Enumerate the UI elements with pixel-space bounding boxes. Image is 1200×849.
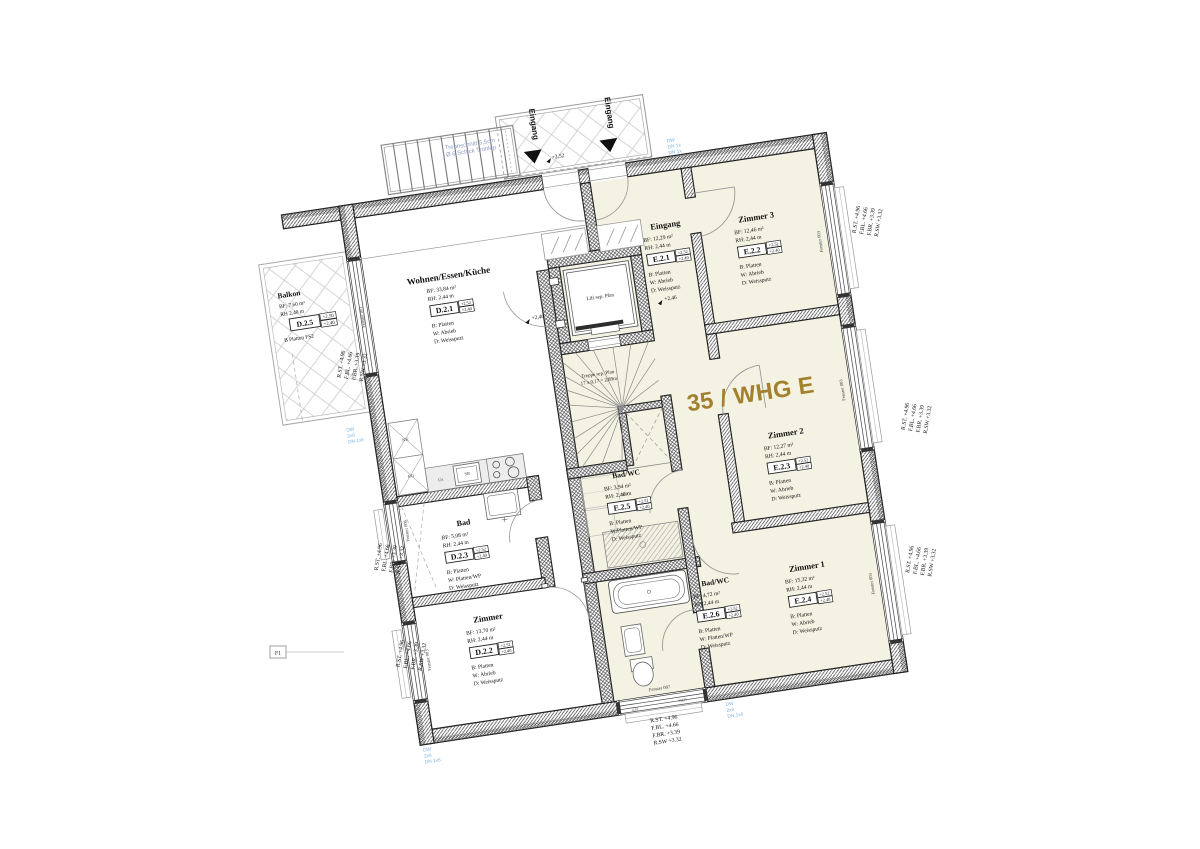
svg-text:Wohnen/Essen/Küche: Wohnen/Essen/Küche	[406, 264, 491, 286]
svg-text:Zimmer: Zimmer	[473, 610, 504, 624]
svg-text:DW: DW	[666, 137, 675, 144]
svg-text:+2,46: +2,46	[531, 314, 545, 322]
svg-text:2x6: 2x6	[424, 753, 433, 760]
svg-text:DW: DW	[346, 426, 355, 433]
svg-text:DW: DW	[423, 747, 432, 754]
svg-text:Gs: Gs	[438, 477, 444, 483]
svg-text:Fenster 003: Fenster 003	[424, 648, 432, 671]
svg-text:2x6: 2x6	[347, 432, 356, 439]
svg-text:DW: DW	[725, 701, 734, 708]
svg-text:Bad: Bad	[456, 517, 472, 528]
svg-text:SB: SB	[464, 471, 470, 477]
svg-text:RH: 2,44 m: RH: 2,44 m	[427, 293, 455, 303]
svg-text:F1: F1	[275, 651, 281, 657]
svg-text:RH: 2,44 m: RH: 2,44 m	[442, 540, 470, 550]
svg-text:RH: 2,44 m: RH: 2,44 m	[467, 635, 495, 645]
svg-text:2x6: 2x6	[726, 707, 735, 714]
